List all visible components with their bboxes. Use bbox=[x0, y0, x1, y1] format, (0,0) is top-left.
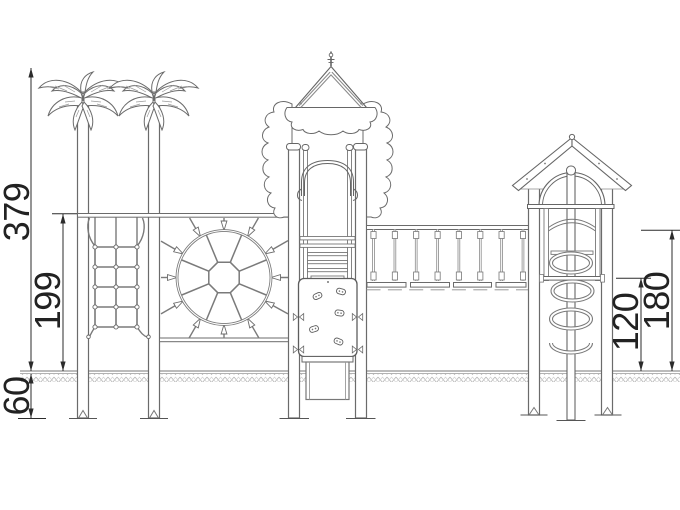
bridge-balusters bbox=[371, 230, 526, 282]
foundation-box bbox=[302, 357, 353, 400]
tower-post-left bbox=[289, 148, 300, 418]
dim-label-total-height: 379 bbox=[0, 183, 37, 242]
climbing-net bbox=[87, 218, 151, 339]
bridge-deck bbox=[367, 283, 526, 288]
cloud-band bbox=[285, 108, 377, 135]
right-tower-post-left bbox=[529, 186, 540, 415]
playground-elevation-drawing: 379 199 60 120 180 bbox=[0, 0, 680, 510]
elevation-drawing-sheet: 379 199 60 120 180 bbox=[0, 0, 680, 510]
dim-label-foundation-depth: 60 bbox=[0, 376, 37, 415]
roof-finial bbox=[328, 52, 335, 67]
dim-label-tower-rail-height: 180 bbox=[636, 272, 677, 331]
climbing-wall-panel bbox=[299, 279, 358, 357]
tower-steps bbox=[300, 237, 355, 280]
top-rail bbox=[78, 214, 295, 218]
right-tower-rail-upper bbox=[528, 205, 615, 209]
spider-web-net bbox=[160, 218, 289, 342]
web-bottom-rail bbox=[160, 338, 289, 342]
ground-line bbox=[20, 371, 680, 382]
bridge-top-rail bbox=[367, 226, 529, 230]
rope-bridge bbox=[367, 226, 529, 290]
dim-label-platform-rail-height: 199 bbox=[27, 272, 68, 331]
